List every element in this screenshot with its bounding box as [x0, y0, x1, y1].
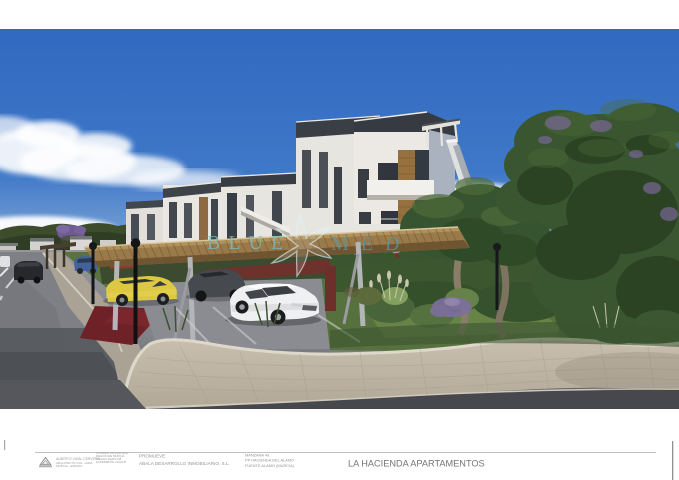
- svg-text:EXPEDIENTE 10101-B: EXPEDIENTE 10101-B: [96, 460, 126, 464]
- svg-text:ABALA DESARROLLO INMOBILIARIO,: ABALA DESARROLLO INMOBILIARIO, S.L.: [139, 461, 230, 466]
- svg-text:PP HACIENDA DEL ALAMO: PP HACIENDA DEL ALAMO: [245, 458, 294, 463]
- svg-text:BLUE: BLUE: [207, 232, 291, 254]
- svg-text:LA HACIENDA APARTAMENTOS: LA HACIENDA APARTAMENTOS: [348, 459, 485, 469]
- svg-text:PROMUEVE: PROMUEVE: [139, 454, 165, 459]
- svg-text:MED: MED: [331, 233, 411, 255]
- svg-text:FUENTE ALAMO (MURCIA): FUENTE ALAMO (MURCIA): [245, 463, 295, 468]
- svg-text:MURCIA · ESPANA: MURCIA · ESPANA: [56, 464, 82, 468]
